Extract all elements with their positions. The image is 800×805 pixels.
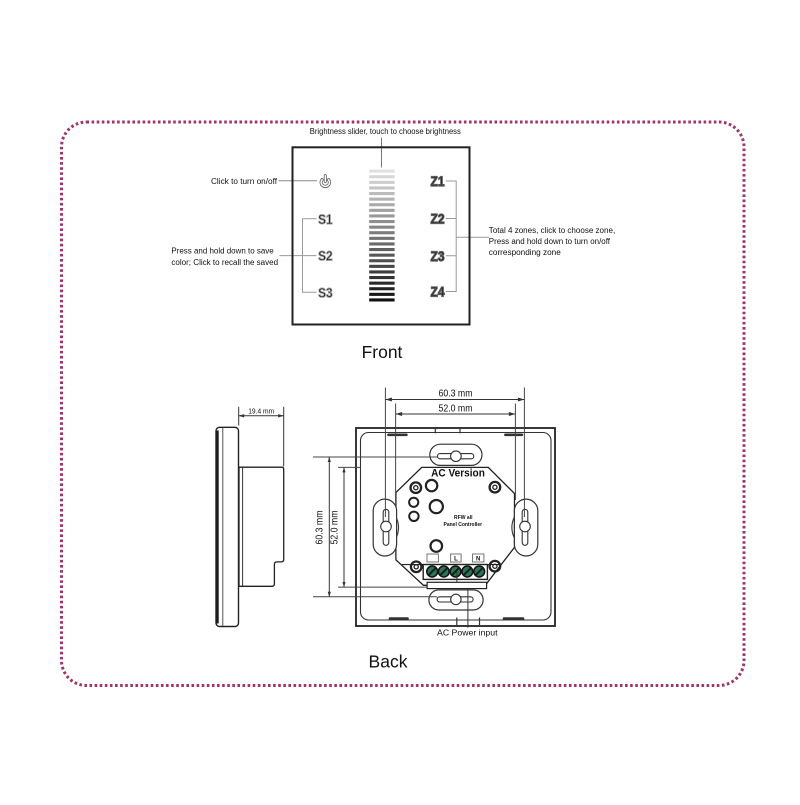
svg-text:19.4 mm: 19.4 mm xyxy=(248,409,274,416)
svg-text:60.3 mm: 60.3 mm xyxy=(439,389,473,400)
svg-text:Press and hold down to turn on: Press and hold down to turn on/off xyxy=(489,237,611,246)
svg-text:AC Version: AC Version xyxy=(431,468,485,480)
svg-text:Brightness slider, touch to ch: Brightness slider, touch to choose brigh… xyxy=(310,127,461,136)
svg-text:52.0 mm: 52.0 mm xyxy=(439,404,473,415)
svg-text:Press and hold down to save: Press and hold down to save xyxy=(171,247,274,256)
svg-text:Z1: Z1 xyxy=(431,173,445,189)
svg-text:Z2: Z2 xyxy=(431,211,445,227)
svg-text:Z3: Z3 xyxy=(431,248,445,264)
svg-text:S1: S1 xyxy=(318,211,333,227)
svg-text:L: L xyxy=(454,557,458,563)
svg-text:60.3 mm: 60.3 mm xyxy=(315,511,326,545)
svg-text:color; Click to recall the sav: color; Click to recall the saved xyxy=(171,258,278,267)
svg-text:Total 4 zones, click to choose: Total 4 zones, click to choose zone, xyxy=(489,226,615,235)
svg-text:Front: Front xyxy=(362,342,403,362)
svg-text:Z4: Z4 xyxy=(431,284,445,300)
svg-text:Back: Back xyxy=(369,652,408,672)
svg-text:Panel Controller: Panel Controller xyxy=(444,522,483,528)
svg-text:S3: S3 xyxy=(318,284,333,300)
svg-text:RFW all: RFW all xyxy=(454,515,473,521)
svg-text:corresponding zone: corresponding zone xyxy=(489,248,562,257)
svg-text:AC Power input: AC Power input xyxy=(437,628,498,638)
svg-text:52.0 mm: 52.0 mm xyxy=(330,511,341,545)
svg-text:N: N xyxy=(476,557,480,563)
svg-text:Click to turn on/off: Click to turn on/off xyxy=(211,177,278,186)
svg-text:S2: S2 xyxy=(318,248,333,264)
